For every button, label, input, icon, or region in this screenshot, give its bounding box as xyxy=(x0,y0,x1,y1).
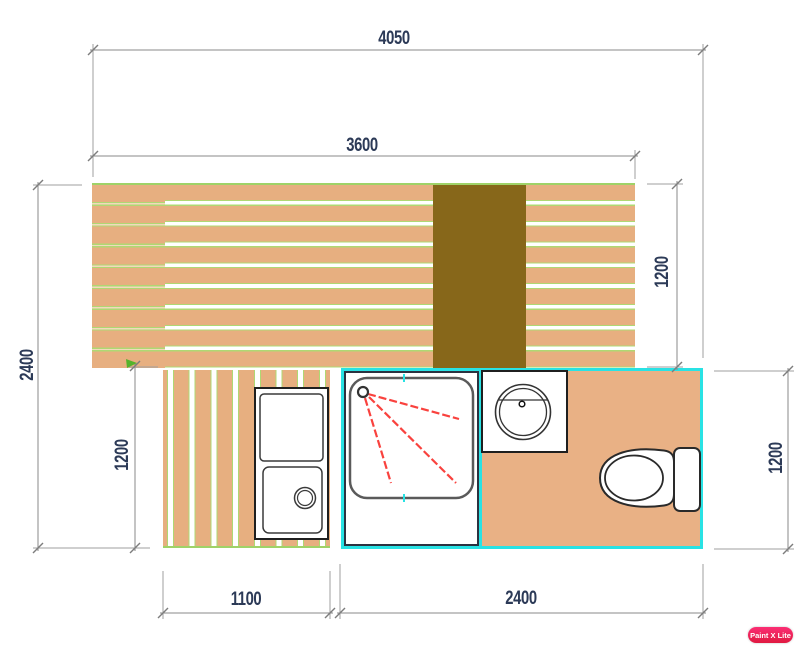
floor-plan-canvas: 4050 3600 2400 1200 1200 1200 1100 2400 … xyxy=(0,0,800,648)
shower xyxy=(350,374,473,502)
dim-deck-depth-label: 1200 xyxy=(652,256,674,287)
toilet-tank xyxy=(674,448,700,511)
dim-lower-left-height-label: 1200 xyxy=(112,439,134,470)
dim-lower-deck-width-label: 1100 xyxy=(231,589,262,611)
washbasin xyxy=(482,371,567,452)
dim-bathroom-width-label: 2400 xyxy=(505,588,536,610)
paintx-watermark-badge: Paint X Lite xyxy=(748,627,793,643)
toilet xyxy=(600,448,700,511)
dimension-lines xyxy=(33,44,794,619)
dimension-ticks xyxy=(33,45,793,618)
dim-bathroom-height-label: 1200 xyxy=(766,442,788,473)
basin-tap-icon xyxy=(519,401,525,407)
paintx-watermark-label: Paint X Lite xyxy=(750,631,791,640)
dim-deck-width-label: 3600 xyxy=(346,135,377,157)
dim-overall-height-label: 2400 xyxy=(17,349,39,380)
sink-unit xyxy=(255,388,328,539)
dim-overall-width-label: 4050 xyxy=(378,28,409,50)
drawing-overlay xyxy=(0,0,800,648)
shower-head-icon xyxy=(358,387,368,397)
